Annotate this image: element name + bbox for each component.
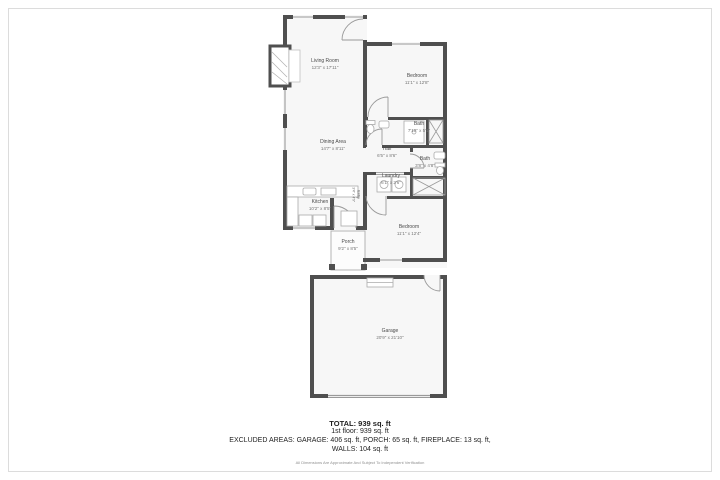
excluded-areas-label-2: WALLS: 104 sq. ft: [0, 446, 720, 455]
fridge-icon: [341, 211, 357, 226]
excluded-areas-label: EXCLUDED AREAS: GARAGE: 406 sq. ft, PORC…: [0, 437, 720, 446]
floor-plan-drawing: [0, 0, 720, 480]
first-floor-area-label: 1st floor: 939 sq. ft: [0, 428, 720, 437]
toilet-icon: [366, 121, 375, 125]
fireplace-icon: [270, 46, 300, 86]
floor-plan-page: Living Room 12'3" x 17'11" Bedroom 11'1"…: [0, 0, 720, 480]
sink-icon: [434, 152, 445, 159]
disclaimer-text: All Dimensions Are Approximate And Subje…: [0, 461, 720, 466]
sink-icon: [379, 121, 389, 128]
stove-icon: [321, 188, 336, 195]
garage-steps: [367, 278, 393, 287]
area-summary: TOTAL: 939 sq. ft 1st floor: 939 sq. ft …: [0, 419, 720, 465]
total-area-label: TOTAL: 939 sq. ft: [0, 419, 720, 428]
sink-icon: [303, 188, 316, 195]
